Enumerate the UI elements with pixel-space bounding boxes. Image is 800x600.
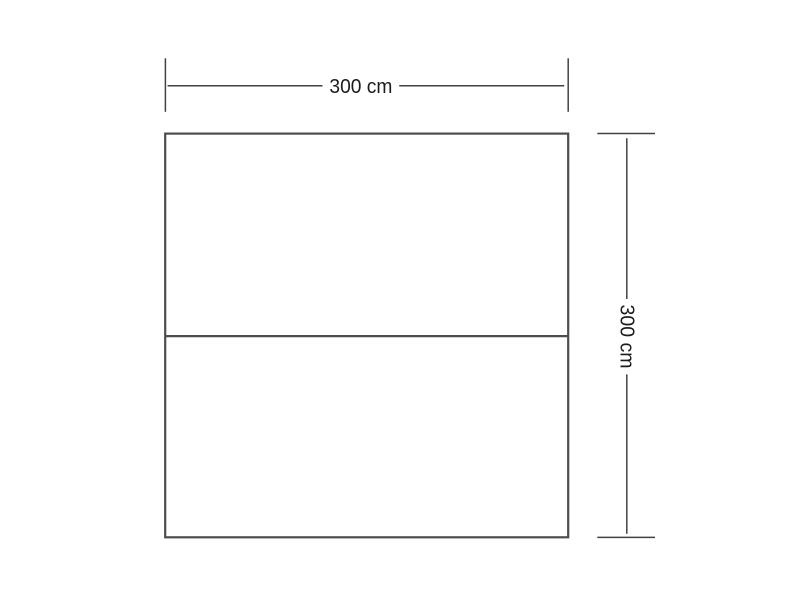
svg-text:300 cm: 300 cm <box>616 305 638 369</box>
svg-text:300 cm: 300 cm <box>329 76 392 98</box>
